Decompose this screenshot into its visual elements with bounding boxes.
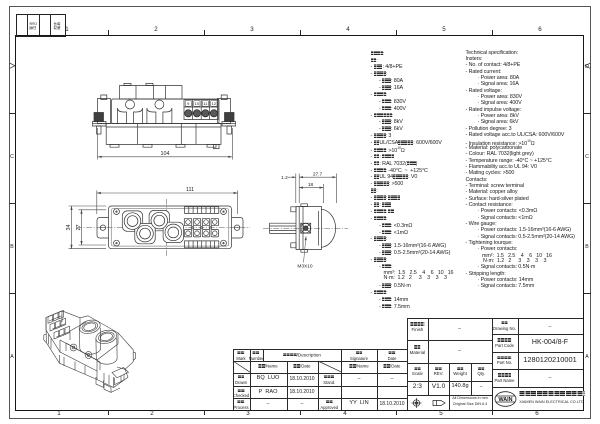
- svg-text:27.7: 27.7: [313, 172, 323, 178]
- svg-text:11: 11: [203, 101, 208, 106]
- svg-text:1.2: 1.2: [281, 175, 288, 181]
- svg-text:111: 111: [186, 187, 194, 193]
- svg-text:27: 27: [76, 225, 82, 231]
- svg-text:34: 34: [66, 225, 72, 231]
- svg-text:104: 104: [161, 151, 170, 157]
- svg-text:M3X10: M3X10: [297, 264, 313, 270]
- svg-text:12: 12: [212, 101, 217, 106]
- svg-text:18: 18: [308, 182, 314, 188]
- svg-text:WAIN: WAIN: [498, 397, 512, 403]
- svg-text:9: 9: [187, 101, 190, 106]
- svg-text:10: 10: [195, 101, 200, 106]
